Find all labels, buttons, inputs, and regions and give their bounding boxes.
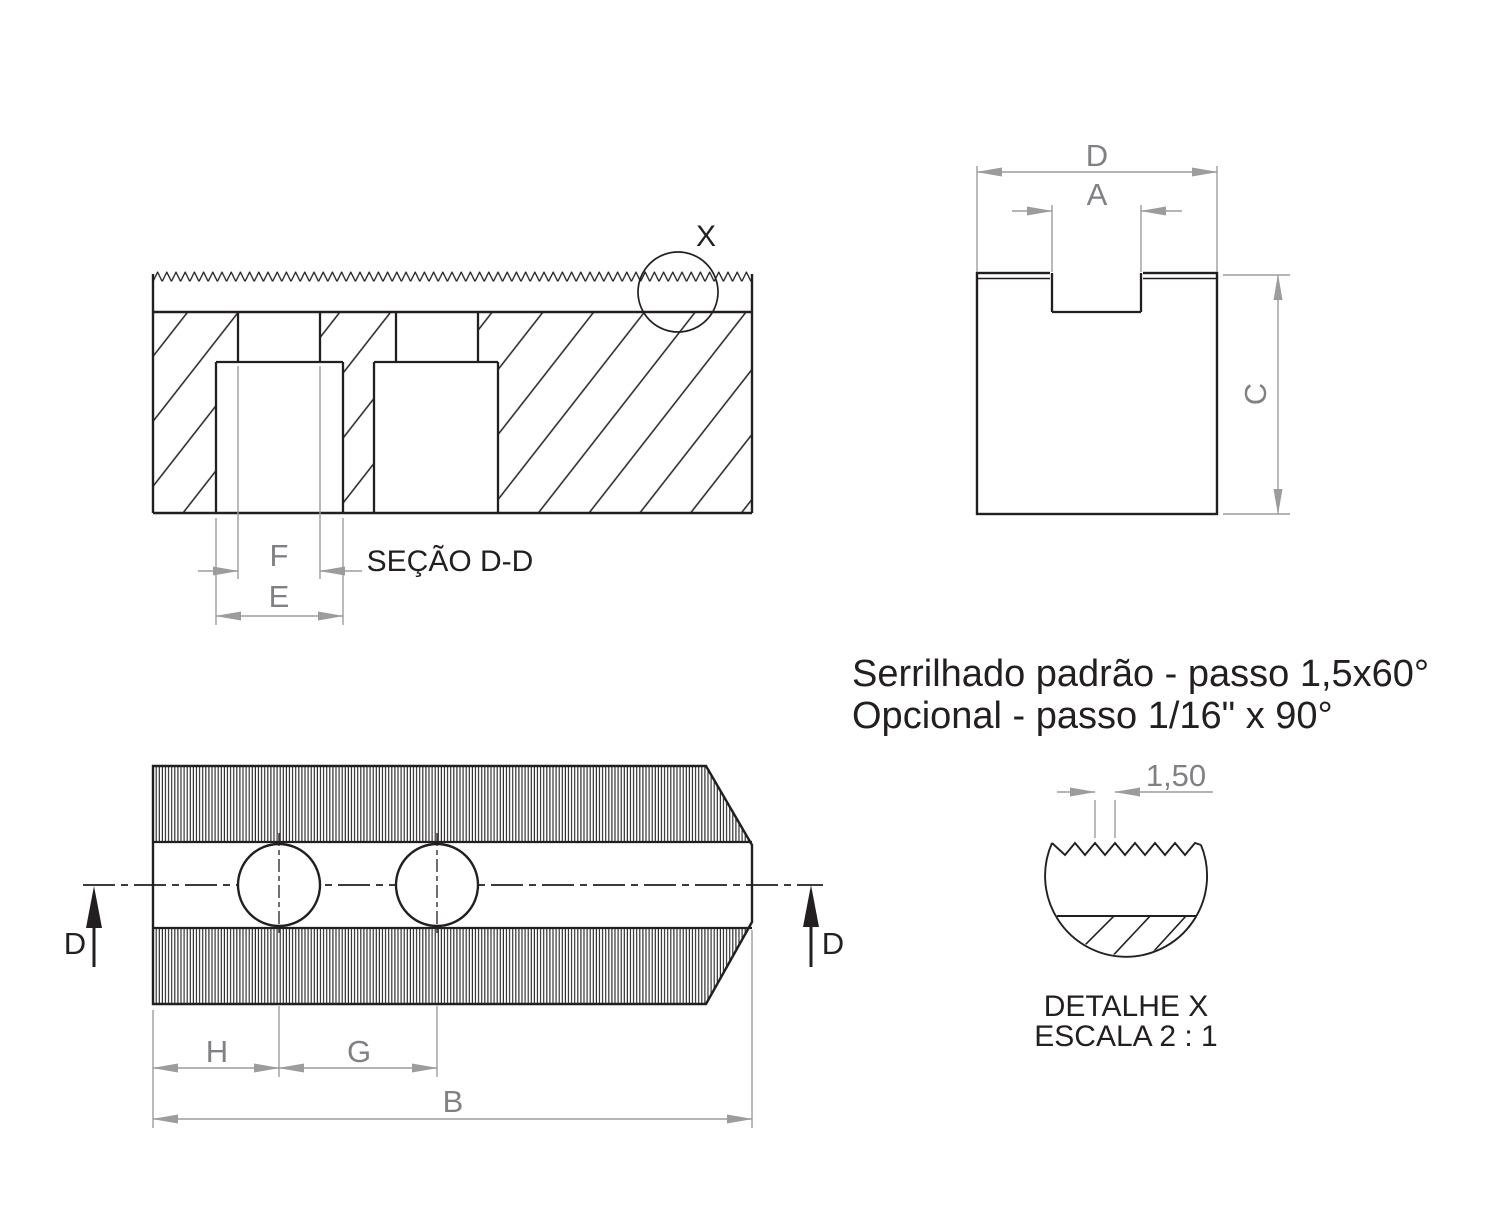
end-slot-clear xyxy=(1050,270,1143,312)
dim-b-label: B xyxy=(443,1084,464,1119)
dim-h-label: H xyxy=(206,1034,228,1069)
page-background xyxy=(0,0,1486,1207)
dim-pitch-label: 1,50 xyxy=(1146,758,1206,793)
detail-scale: ESCALA 2 : 1 xyxy=(1034,1020,1217,1053)
cut-label-left: D xyxy=(64,926,86,961)
slot2-body xyxy=(374,362,498,513)
note-line-1: Serrilhado padrão - passo 1,5x60° xyxy=(852,653,1429,695)
dim-g-label: G xyxy=(347,1034,371,1069)
plan-bottom-band xyxy=(153,928,748,1004)
dim-a-label: A xyxy=(1087,177,1108,212)
dim-d-label: D xyxy=(1086,138,1108,173)
note-line-2: Opcional - passo 1/16" x 90° xyxy=(852,695,1333,737)
plan-top-band xyxy=(153,766,750,842)
slot1-body xyxy=(216,362,343,513)
serration-strip xyxy=(153,272,752,282)
dim-f-label: F xyxy=(270,538,289,573)
detail-x-marker-label: X xyxy=(696,220,716,253)
dim-e-label: E xyxy=(269,579,290,614)
slot2-neck xyxy=(396,312,478,362)
drawing-canvas: X F E SEÇÃO D-D xyxy=(0,0,1486,1207)
detail-title: DETALHE X xyxy=(1044,990,1209,1023)
slot1-neck xyxy=(238,312,320,362)
cut-label-right: D xyxy=(822,926,844,961)
section-title: SEÇÃO D-D xyxy=(367,544,534,578)
drawing-page: X F E SEÇÃO D-D xyxy=(0,0,1486,1207)
dim-c-label: C xyxy=(1238,383,1273,405)
